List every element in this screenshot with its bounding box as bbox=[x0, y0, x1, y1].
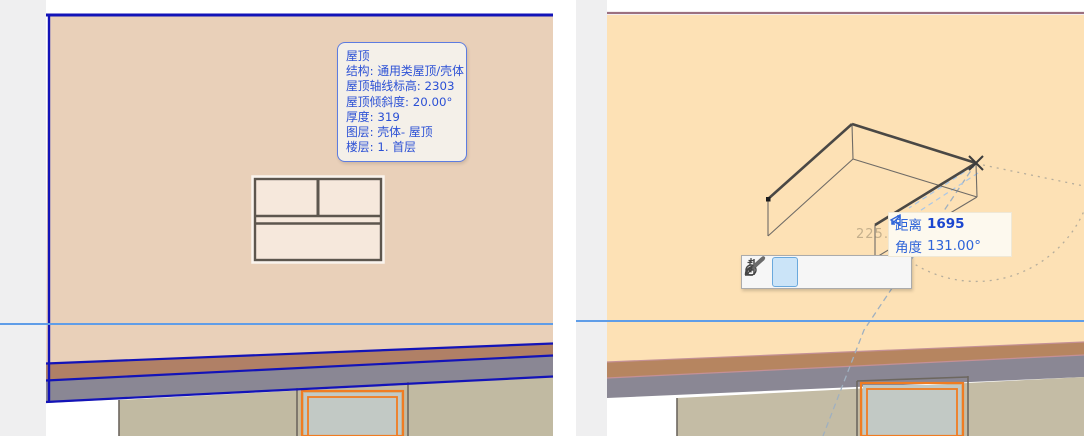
skylight-assembly[interactable] bbox=[253, 177, 383, 262]
tool-polyline-tangent-arc[interactable] bbox=[799, 257, 826, 287]
roof-info-tooltip: 屋顶 结构: 通用类屋顶/壳体 屋顶轴线标高: 2303 屋顶倾斜度: 20.0… bbox=[337, 42, 467, 162]
tool-polyline-full-circle[interactable] bbox=[882, 257, 909, 287]
left-viewport[interactable]: 屋顶 结构: 通用类屋顶/壳体 屋顶轴线标高: 2303 屋顶倾斜度: 20.0… bbox=[46, 0, 556, 436]
window-elevation[interactable] bbox=[297, 382, 408, 436]
polyline-start-node bbox=[766, 197, 771, 202]
tool-polyline-straight[interactable] bbox=[772, 257, 799, 287]
roof-tooltip-line: 楼层: 1. 首层 bbox=[346, 140, 458, 155]
distance-value: 1695 bbox=[927, 216, 965, 232]
roof-tooltip-line: 厚度: 319 bbox=[346, 110, 458, 125]
measurement-tracker: 距离 1695 角度 131.00° bbox=[888, 212, 1012, 257]
tool-polyline-point-arc[interactable] bbox=[827, 257, 854, 287]
right-canvas-drawing bbox=[607, 0, 1084, 436]
application-canvas: 屋顶 结构: 通用类屋顶/壳体 屋顶轴线标高: 2303 屋顶倾斜度: 20.0… bbox=[0, 0, 1084, 436]
level-guide-line-right bbox=[576, 320, 1084, 322]
roof-tooltip-line: 屋顶倾斜度: 20.00° bbox=[346, 95, 458, 110]
window-glass bbox=[304, 393, 401, 436]
roof-tooltip-line: 结构: 通用类屋顶/壳体 bbox=[346, 64, 458, 79]
roof-tooltip-title: 屋顶 bbox=[346, 49, 458, 64]
angle-icon bbox=[889, 213, 903, 227]
window-3d[interactable] bbox=[857, 376, 968, 436]
level-guide-line-left bbox=[0, 323, 553, 325]
roof-tooltip-line: 屋顶轴线标高: 2303 bbox=[346, 79, 458, 94]
roof-plane-fill bbox=[607, 15, 1084, 362]
viewport-divider bbox=[576, 0, 607, 436]
window-glass bbox=[863, 385, 961, 436]
angle-value: 131.00° bbox=[927, 238, 981, 254]
right-viewport[interactable]: 225.60 距离 1695 角度 131.00° bbox=[607, 0, 1084, 436]
left-canvas-drawing bbox=[46, 0, 556, 436]
left-gray-margin bbox=[0, 0, 46, 436]
angle-label: 角度 bbox=[895, 236, 922, 256]
tool-polyline-center-arc[interactable] bbox=[855, 257, 882, 287]
pet-palette-toolbar bbox=[741, 255, 912, 289]
roof-tooltip-line: 图层: 壳体- 屋顶 bbox=[346, 125, 458, 140]
